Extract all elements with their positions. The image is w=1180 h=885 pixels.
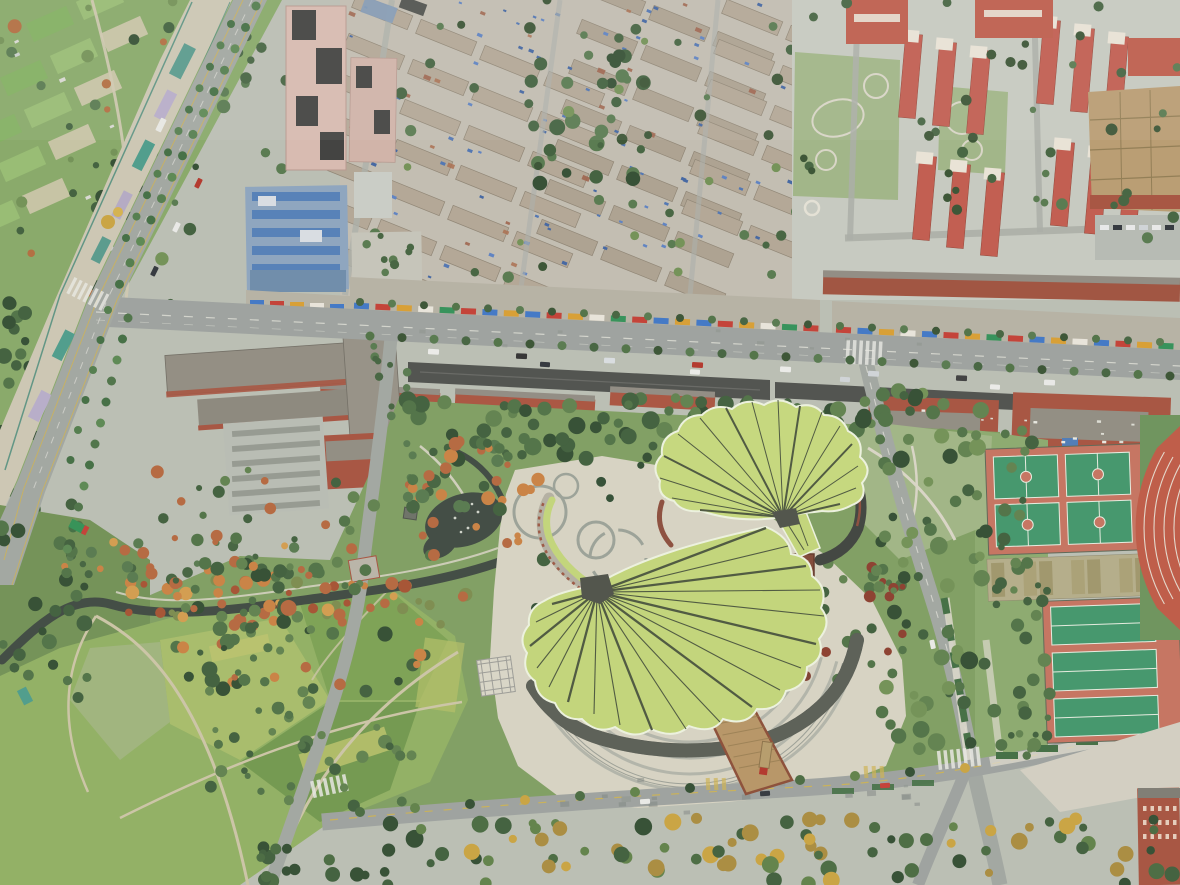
- aerial-photo-figure: [0, 0, 1180, 885]
- aerial-photo: [0, 0, 1180, 885]
- atmosphere: [0, 0, 1180, 885]
